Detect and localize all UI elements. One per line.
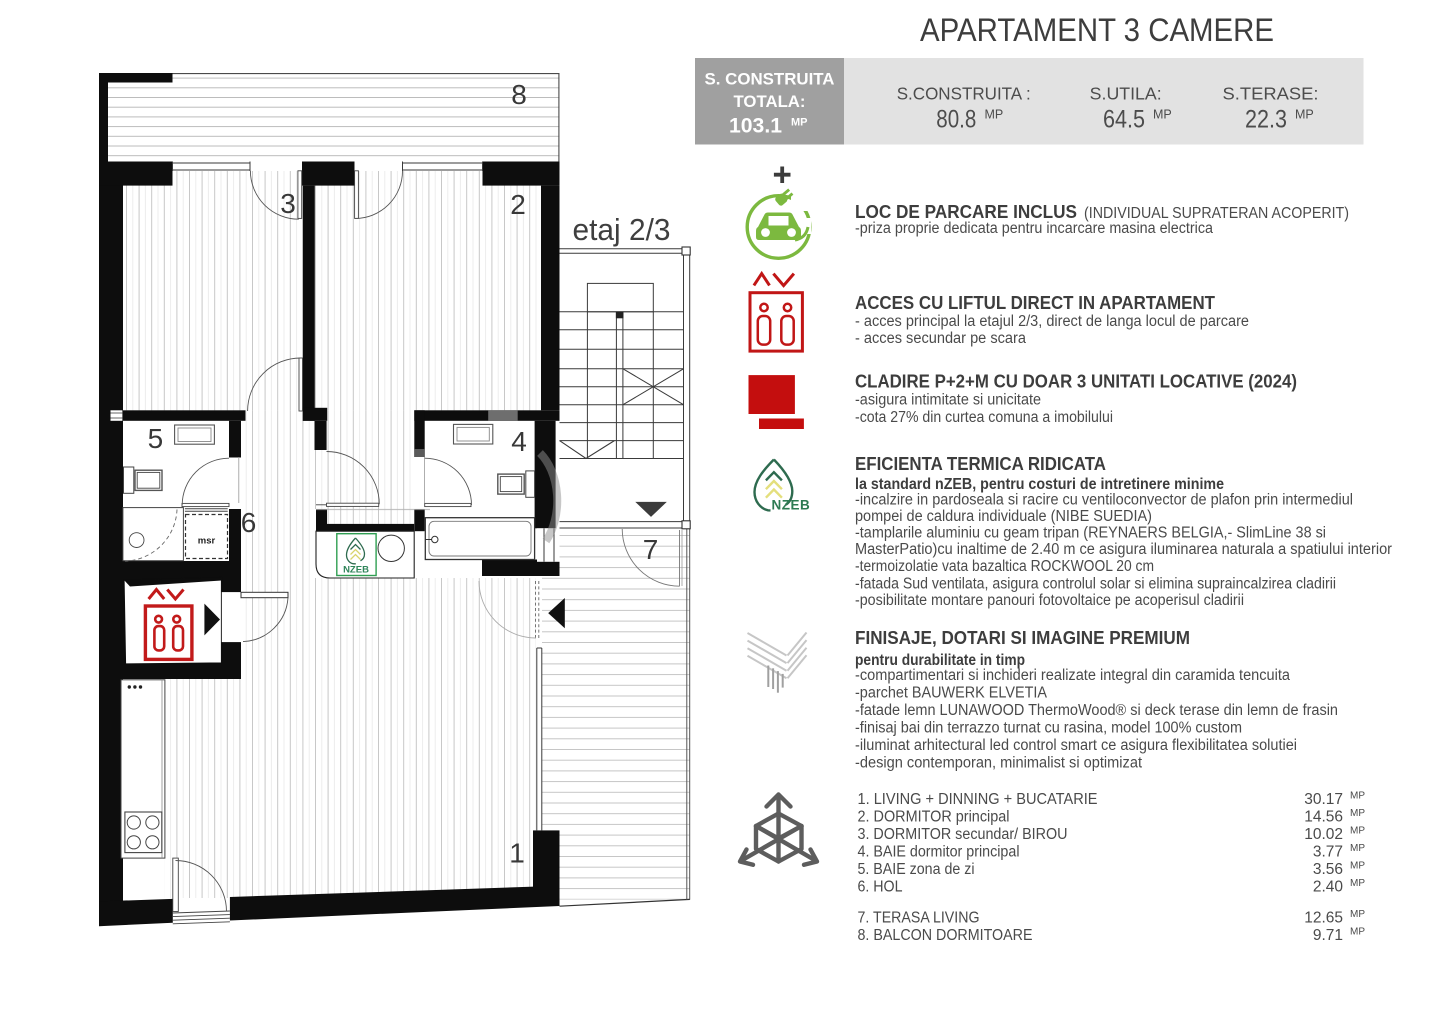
svg-text:5: 5	[148, 423, 164, 454]
svg-text:3.56: 3.56	[1313, 861, 1343, 878]
svg-text:NZEB: NZEB	[343, 565, 369, 576]
svg-text:CLADIRE P+2+M CU DOAR 3 UNITAT: CLADIRE P+2+M CU DOAR 3 UNITATI LOCATIVE…	[855, 372, 1297, 392]
svg-text:MP: MP	[985, 108, 1004, 122]
svg-text:-fatada Sud ventilata, asigura: -fatada Sud ventilata, asigura controlul…	[855, 576, 1336, 593]
svg-text:MP: MP	[1350, 791, 1365, 802]
svg-text:-priza proprie dedicata pentru: -priza proprie dedicata pentru incarcare…	[855, 220, 1213, 237]
svg-text:4: 4	[511, 426, 527, 457]
svg-text:7: 7	[643, 534, 659, 565]
svg-text:-parchet BAUWERK ELVETIA: -parchet BAUWERK ELVETIA	[855, 685, 1048, 702]
svg-text:-termoizolatie vata bazaltica: -termoizolatie vata bazaltica ROCKWOOL 2…	[855, 558, 1154, 575]
svg-text:1: 1	[509, 838, 525, 869]
svg-text:MasterPatio)cu inaltime de 2.4: MasterPatio)cu inaltime de 2.40 m ce asi…	[855, 541, 1392, 558]
svg-text:MP: MP	[1350, 808, 1365, 819]
svg-text:2: 2	[510, 189, 526, 220]
svg-text:ACCES CU LIFTUL DIRECT IN APAR: ACCES CU LIFTUL DIRECT IN APARTAMENT	[855, 293, 1215, 313]
svg-text:MP: MP	[1350, 861, 1365, 872]
svg-text:FINISAJE, DOTARI SI IMAGINE P: FINISAJE, DOTARI SI IMAGINE PREMIUM	[855, 628, 1190, 648]
svg-text:1. LIVING + DINNING + BUCATARI: 1. LIVING + DINNING + BUCATARIE	[858, 791, 1098, 808]
svg-text:2. DORMITOR principal: 2. DORMITOR principal	[858, 809, 1010, 826]
svg-text:-compartimentari si inchideri: -compartimentari si inchideri realizate …	[855, 667, 1290, 684]
svg-text:30.17: 30.17	[1304, 791, 1343, 808]
svg-text:EFICIENTA TERMICA RIDICATA: EFICIENTA TERMICA RIDICATA	[855, 454, 1106, 474]
svg-text:S. CONSTRUITA: S. CONSTRUITA	[705, 70, 835, 89]
svg-text:-iluminat arhitectural led con: -iluminat arhitectural led control smart…	[855, 737, 1297, 754]
svg-text:-posibilitate montare panouri: -posibilitate montare panouri fotovoltai…	[855, 592, 1244, 609]
svg-text:103.1: 103.1	[729, 114, 782, 138]
svg-text:9.71: 9.71	[1313, 927, 1343, 944]
svg-text:MP: MP	[1350, 927, 1365, 938]
svg-text:-design contemporan, minimalis: -design contemporan, minimalist si optim…	[855, 755, 1143, 772]
svg-text:APARTAMENT 3 CAMERE: APARTAMENT 3 CAMERE	[920, 12, 1274, 48]
svg-text:MP: MP	[1295, 108, 1314, 122]
svg-text:MP: MP	[791, 117, 808, 129]
svg-text:-tamplarile aluminiu cu geam t: -tamplarile aluminiu cu geam tripan (REY…	[855, 525, 1326, 542]
svg-text:3.77: 3.77	[1313, 844, 1343, 861]
svg-text:5. BAIE zona de zi: 5. BAIE zona de zi	[858, 861, 975, 878]
svg-text:la standard nZEB, pentru costu: la standard nZEB, pentru costuri de intr…	[855, 476, 1224, 493]
svg-text:8: 8	[511, 79, 527, 110]
svg-text:6. HOL: 6. HOL	[858, 879, 903, 896]
svg-text:MP: MP	[1350, 909, 1365, 920]
svg-text:msr: msr	[198, 536, 216, 547]
svg-text:3. DORMITOR secundar/ BIROU: 3. DORMITOR secundar/ BIROU	[858, 826, 1068, 843]
svg-text:TOTALA:: TOTALA:	[734, 92, 806, 111]
svg-text:-cota 27% din curtea comuna a: -cota 27% din curtea comuna a imobilului	[855, 409, 1113, 426]
svg-text:etaj 2/3: etaj 2/3	[573, 212, 671, 247]
svg-text:S.UTILA:: S.UTILA:	[1090, 84, 1162, 104]
svg-text:4. BAIE dormitor principal: 4. BAIE dormitor principal	[858, 844, 1020, 861]
svg-text:8. BALCON DORMITOARE: 8. BALCON DORMITOARE	[858, 927, 1033, 944]
svg-text:64.5: 64.5	[1103, 106, 1145, 134]
svg-text:2.40: 2.40	[1313, 879, 1344, 896]
svg-text:14.56: 14.56	[1304, 809, 1343, 826]
svg-text:-incalzire in pardoseala si ra: -incalzire in pardoseala si racire cu ve…	[855, 492, 1353, 509]
svg-text:- acces secundar pe scara: - acces secundar pe scara	[855, 330, 1026, 347]
svg-text:LOC DE PARCARE INCLUS: LOC DE PARCARE INCLUS	[855, 202, 1077, 222]
svg-text:10.02: 10.02	[1304, 826, 1343, 843]
svg-text:22.3: 22.3	[1245, 106, 1287, 134]
svg-text:-asigura intimitate si unicita: -asigura intimitate si unicitate	[855, 392, 1041, 409]
svg-text:-finisaj bai din terrazzo turn: -finisaj bai din terrazzo turnat cu rasi…	[855, 720, 1242, 737]
svg-text:80.8: 80.8	[936, 106, 976, 134]
svg-text:NZEB: NZEB	[772, 498, 811, 513]
svg-text:S.CONSTRUITA :: S.CONSTRUITA :	[897, 84, 1031, 104]
svg-text:MP: MP	[1350, 826, 1365, 837]
svg-text:MP: MP	[1350, 843, 1365, 854]
svg-text:7. TERASA LIVING: 7. TERASA LIVING	[858, 910, 980, 927]
svg-text:12.65: 12.65	[1304, 910, 1343, 927]
svg-text:S.TERASE:: S.TERASE:	[1223, 84, 1319, 104]
svg-text:-fatade lemn LUNAWOOD ThermoWo: -fatade lemn LUNAWOOD ThermoWood® si dec…	[855, 702, 1338, 719]
svg-text:3: 3	[280, 188, 296, 219]
svg-text:- acces principal la etajul 2/: - acces principal la etajul 2/3, direct …	[855, 313, 1249, 330]
svg-text:MP: MP	[1350, 878, 1365, 889]
svg-text:MP: MP	[1153, 108, 1172, 122]
svg-text:6: 6	[241, 507, 257, 538]
svg-text:pompei de caldura individuale: pompei de caldura individuale (NIBE SUED…	[855, 508, 1152, 525]
